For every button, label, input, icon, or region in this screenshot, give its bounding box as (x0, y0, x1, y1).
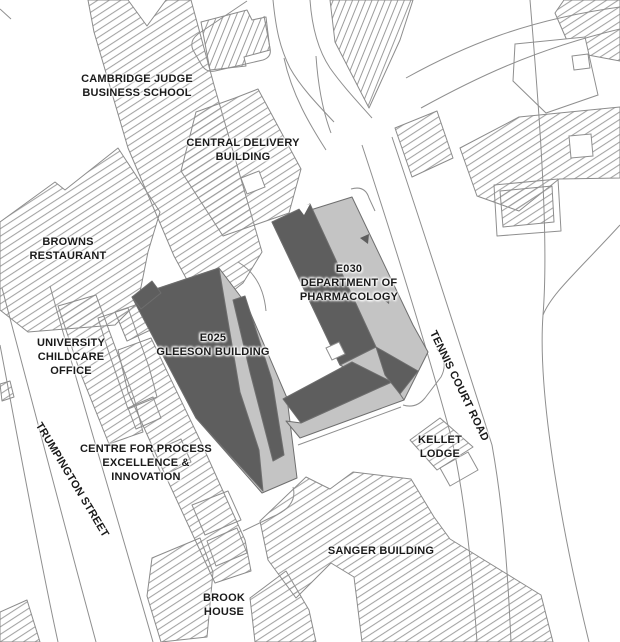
building-bottom-left-corner (0, 600, 40, 642)
building-east-courtyard-infill (500, 186, 554, 227)
building-kellet-lodge-footprint (410, 418, 473, 470)
top-left-tick (0, 9, 11, 19)
building-east-open-block (513, 37, 598, 113)
road-island-east (316, 56, 331, 133)
road-island-west (284, 58, 326, 150)
east-block-courtyard-hole (569, 134, 593, 158)
site-plan-drawing (0, 0, 620, 642)
building-northeast-b (395, 111, 453, 177)
road-top-center-west-edge (273, 0, 334, 122)
building-northeast-a (330, 0, 413, 108)
park-inner-curve (543, 225, 620, 315)
building-3d-e030-pharmacology (272, 197, 428, 438)
building-brook-house-west (147, 538, 213, 642)
site-plan-map: CAMBRIDGE JUDGE BUSINESS SCHOOL CENTRAL … (0, 0, 620, 642)
